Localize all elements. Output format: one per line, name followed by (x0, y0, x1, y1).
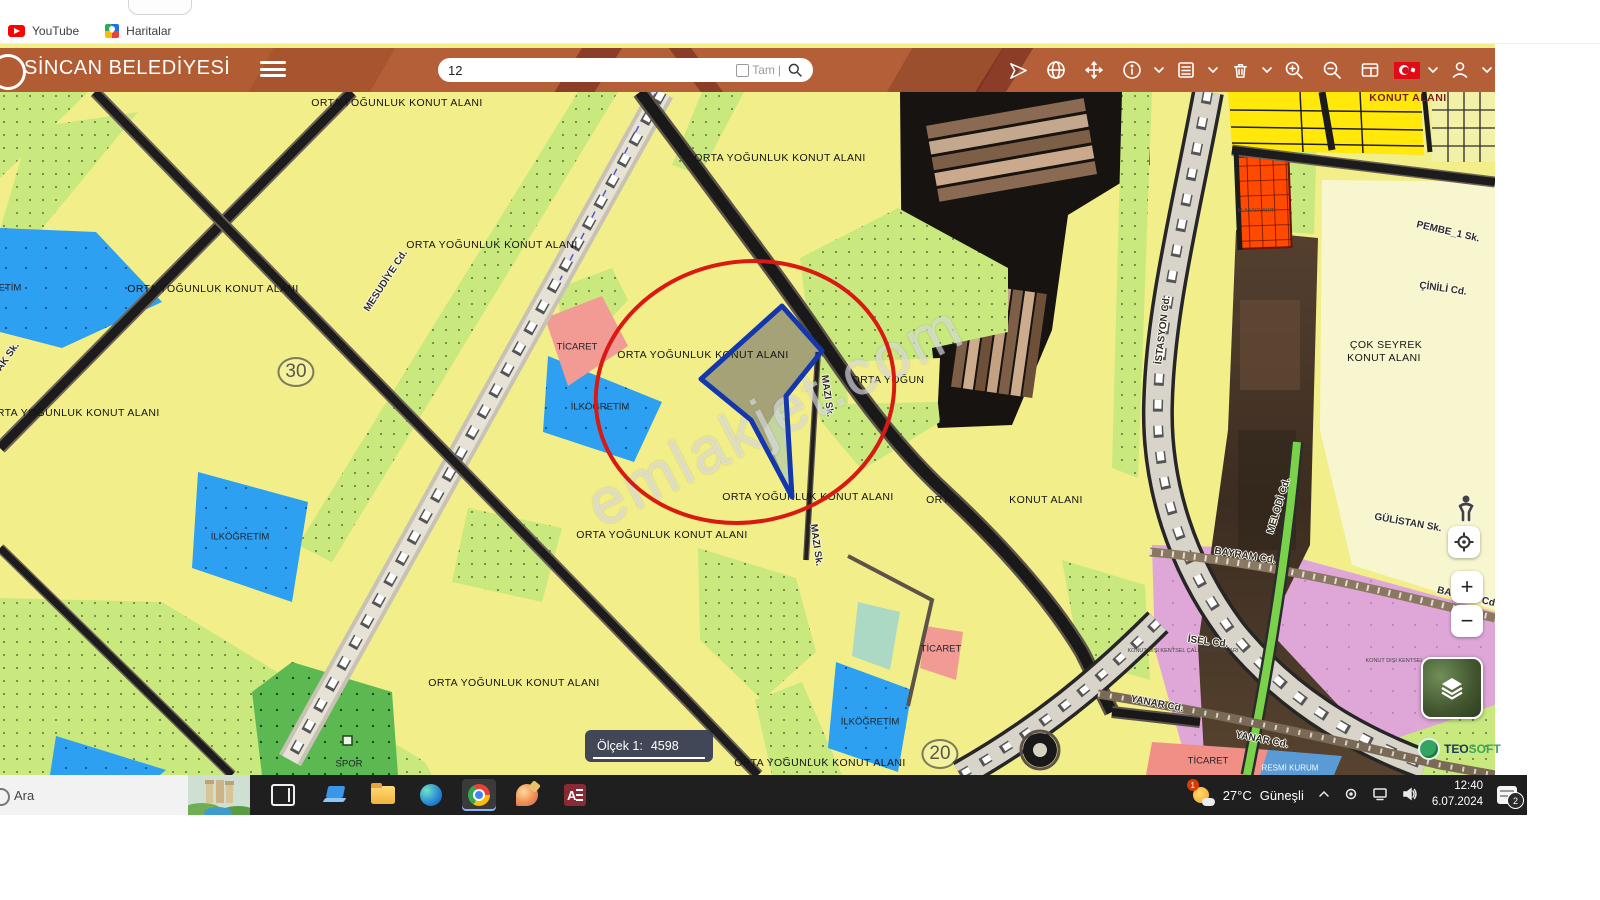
list-caret-icon[interactable] (1207, 55, 1219, 85)
info-icon[interactable] (1117, 55, 1147, 85)
browser-top-strip (0, 0, 1600, 18)
weather-widget-image[interactable] (188, 775, 250, 815)
info-caret-icon[interactable] (1153, 55, 1165, 85)
network-icon[interactable] (1372, 787, 1388, 804)
taskbar-search[interactable]: Ara (0, 775, 188, 815)
pegman-icon[interactable] (1455, 494, 1477, 522)
trash-caret-icon[interactable] (1261, 55, 1273, 85)
browser-tab[interactable] (128, 0, 192, 15)
edge-icon (420, 784, 442, 806)
locate-icon (1454, 532, 1474, 552)
paint3d-button[interactable] (510, 779, 544, 811)
cast-icon[interactable] (1344, 787, 1358, 804)
google-maps-icon (105, 24, 119, 38)
user-caret-icon[interactable] (1481, 55, 1493, 85)
trash-icon[interactable] (1225, 55, 1255, 85)
bookmarks-bar: YouTube Haritalar (0, 18, 1600, 44)
notification-badge: 2 (1507, 792, 1524, 809)
flag-tr-icon[interactable] (1393, 55, 1421, 85)
file-explorer-button[interactable] (366, 779, 400, 811)
laptop-icon (324, 786, 346, 804)
bookmark-youtube[interactable]: YouTube (8, 24, 79, 38)
send-icon[interactable] (1003, 55, 1033, 85)
search-icon[interactable] (787, 62, 803, 78)
screen: ORTA YOĞUNLUK KONUT ALANIORTA YOĞUNLUK K… (0, 0, 1600, 900)
zoom-out-icon[interactable] (1317, 55, 1347, 85)
taskbar-search-label: Ara (14, 788, 34, 803)
map-canvas[interactable] (0, 0, 1495, 775)
bookmark-haritalar[interactable]: Haritalar (105, 24, 171, 38)
weather-badge: 1 (1187, 779, 1199, 791)
layers-icon (1439, 675, 1465, 701)
locate-button[interactable] (1448, 526, 1480, 558)
map-zoom-out-button[interactable]: − (1451, 605, 1483, 637)
chrome-button[interactable] (462, 779, 496, 811)
edge-button[interactable] (414, 779, 448, 811)
app-header: SİNCAN BELEDİYESİ 12 Tam| (0, 48, 1495, 92)
tray-time: 12:40 (1432, 779, 1483, 795)
exact-match-toggle[interactable]: Tam| (736, 63, 781, 77)
search-icon (0, 788, 10, 806)
clock[interactable]: 12:40 6.07.2024 (1432, 779, 1483, 810)
access-button[interactable]: A (558, 779, 592, 811)
page-title: SİNCAN BELEDİYESİ (24, 57, 230, 80)
chrome-icon (468, 784, 490, 806)
municipality-logo (0, 54, 26, 90)
globe-icon[interactable] (1041, 55, 1071, 85)
access-icon: A (564, 784, 586, 806)
move-icon[interactable] (1079, 55, 1109, 85)
tray-date: 6.07.2024 (1432, 795, 1483, 811)
checkbox-icon[interactable] (736, 64, 749, 77)
taskbar: Ara A 1 27°C (0, 775, 1527, 815)
youtube-icon (8, 25, 25, 37)
teosoft-globe-icon (1418, 738, 1440, 760)
temperature: 27°C (1223, 788, 1252, 803)
layers-list-icon[interactable] (1171, 55, 1201, 85)
notification-center-button[interactable]: 2 (1497, 786, 1517, 804)
scale-label: Ölçek 1: (597, 739, 643, 753)
task-view-icon (271, 784, 295, 806)
panel-icon[interactable] (1355, 55, 1385, 85)
zoom-in-icon[interactable] (1279, 55, 1309, 85)
pc-app-button[interactable] (318, 779, 352, 811)
volume-icon[interactable] (1402, 787, 1418, 804)
tray-expand-icon[interactable] (1318, 788, 1330, 803)
teosoft-logo: TEOSOFT (1418, 738, 1501, 760)
basemap-layers-button[interactable] (1421, 657, 1483, 719)
map-zoom-in-button[interactable]: + (1451, 571, 1483, 603)
user-icon[interactable] (1445, 55, 1475, 85)
weather-sun-icon: 1 (1191, 783, 1215, 807)
weather-condition: Güneşli (1260, 788, 1304, 803)
folder-icon (371, 786, 395, 804)
paint-palette-icon (516, 784, 538, 806)
scale-tooltip: Ölçek 1: 4598 (585, 730, 713, 762)
scale-value: 4598 (651, 739, 679, 753)
zoning-map (0, 0, 1495, 775)
search-input[interactable]: 12 Tam| (438, 58, 813, 82)
menu-icon[interactable] (260, 61, 286, 77)
search-value: 12 (448, 63, 736, 78)
weather-tray[interactable]: 1 27°C Güneşli (1191, 783, 1304, 807)
flag-caret-icon[interactable] (1427, 55, 1439, 85)
task-view-button[interactable] (266, 779, 300, 811)
